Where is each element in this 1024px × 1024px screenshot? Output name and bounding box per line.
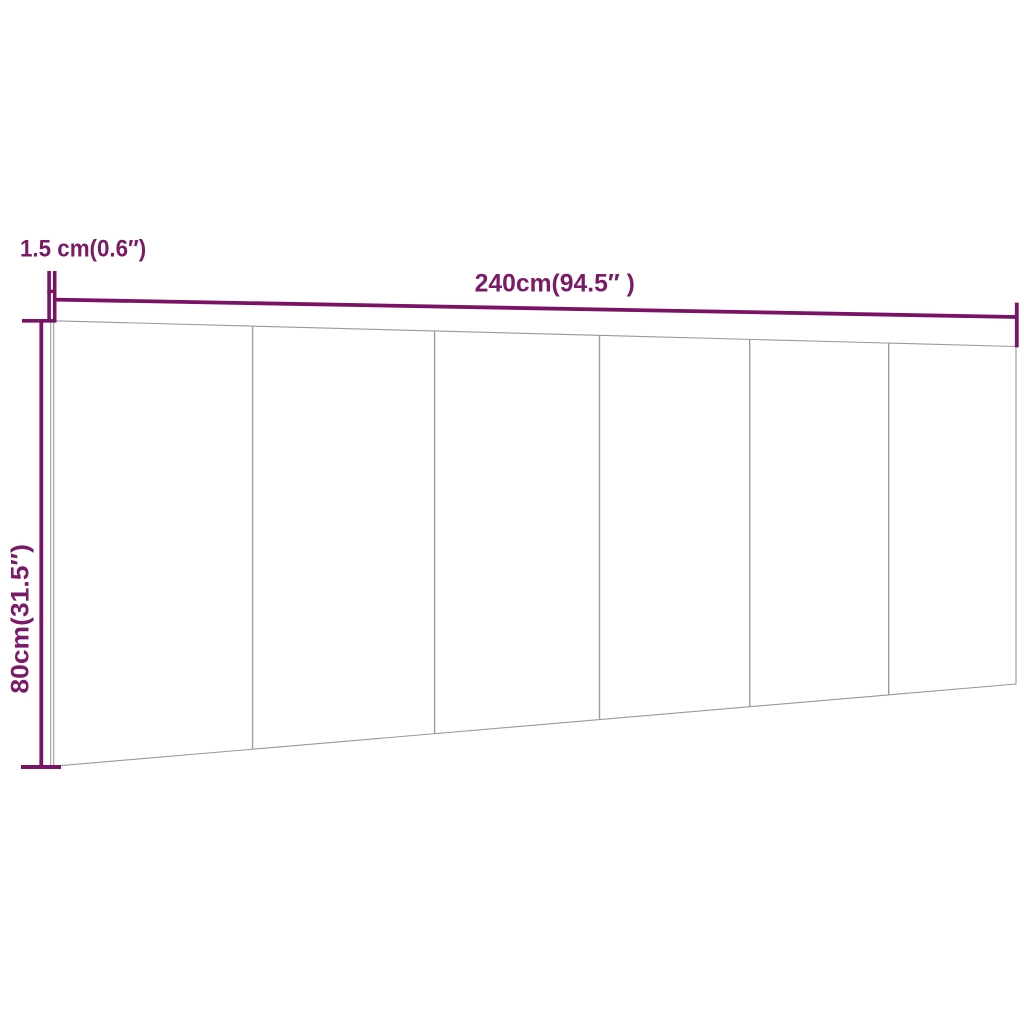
svg-text:1.5 cm(0.6″): 1.5 cm(0.6″) — [20, 236, 146, 263]
svg-text:240cm(94.5″ ): 240cm(94.5″ ) — [475, 269, 635, 297]
svg-text:80cm(31.5″): 80cm(31.5″) — [7, 544, 35, 694]
